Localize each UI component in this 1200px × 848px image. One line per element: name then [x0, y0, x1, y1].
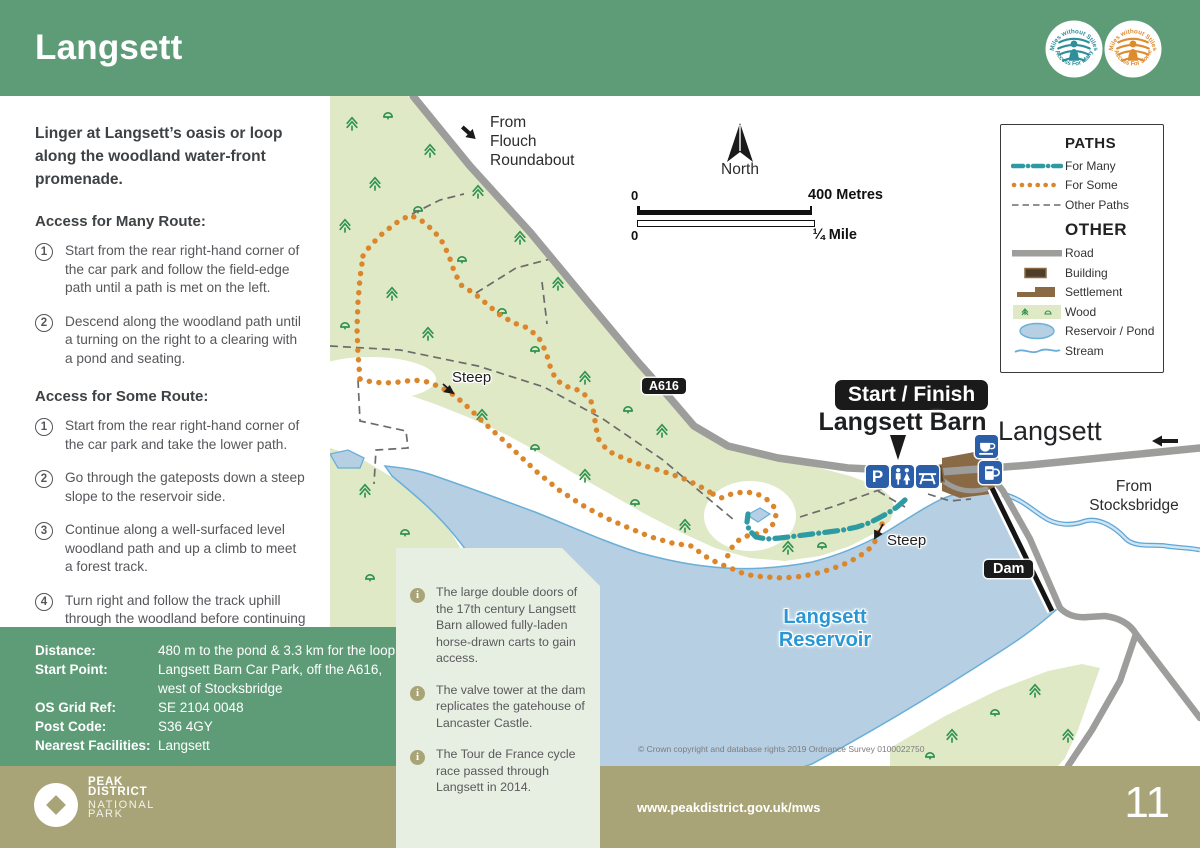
from-stocksbridge-arrow-icon	[1150, 434, 1180, 448]
info-icon: i	[410, 746, 436, 796]
many-step-1: 1 Start from the rear right-hand corner …	[35, 242, 307, 298]
map-legend: PATHS For Many For Some Other Paths OTHE…	[1000, 124, 1164, 373]
info-item-valve-tower: i The valve tower at the dam replicates …	[410, 682, 588, 732]
peak-district-logo-text: PEAK DISTRICT NATIONAL PARK	[88, 778, 155, 819]
detail-grid-ref: OS Grid Ref: SE 2104 0048	[35, 698, 400, 717]
from-stocksbridge-label: From Stocksbridge	[1078, 477, 1190, 515]
start-finish-badge: Start / Finish	[835, 380, 988, 410]
detail-post-code: Post Code: S36 4GY	[35, 717, 400, 736]
legend-item-settlement: Settlement	[1009, 283, 1163, 303]
route-details-panel: Distance: 480 m to the pond & 3.3 km for…	[0, 627, 400, 766]
route-instructions-sidebar: Linger at Langsett’s oasis or loop along…	[0, 96, 330, 627]
info-item-barn: i The large double doors of the 17th cen…	[410, 584, 588, 667]
peak-district-logo-icon	[33, 773, 81, 841]
picnic-icon	[916, 465, 939, 488]
info-icon: i	[410, 584, 436, 667]
toilets-icon	[891, 465, 914, 488]
legend-item-for-some: For Some	[1009, 176, 1163, 196]
langsett-label: Langsett	[998, 416, 1102, 447]
legend-item-for-many: For Many	[1009, 156, 1163, 176]
from-flouch-label: From Flouch Roundabout	[490, 113, 574, 170]
legend-for-many-swatch	[1009, 162, 1065, 170]
steep-east-label: Steep	[887, 532, 926, 549]
north-indicator: North	[710, 121, 770, 179]
legend-for-some-swatch	[1009, 181, 1065, 189]
copyright-text: © Crown copyright and database rights 20…	[638, 744, 924, 754]
detail-nearest-facilities: Nearest Facilities: Langsett	[35, 736, 400, 755]
legend-other-title: OTHER	[1065, 220, 1163, 240]
info-item-tour-de-france: i The Tour de France cycle race passed t…	[410, 746, 588, 796]
legend-item-other-paths: Other Paths	[1009, 195, 1163, 215]
access-for-some-heading: Access for Some Route:	[35, 388, 300, 405]
some-step-1: 1 Start from the rear right-hand corner …	[35, 417, 307, 454]
legend-building-swatch	[1009, 267, 1065, 279]
many-step-2: 2 Descend along the woodland path until …	[35, 313, 307, 369]
leaflet-page: From Flouch Roundabout North 0 400 Metre…	[0, 0, 1200, 848]
scale-miles-label: ¼ Mile	[795, 227, 857, 243]
scale-miles-zero: 0	[631, 228, 638, 243]
scale-metres-label: 400 Metres	[783, 187, 883, 203]
detail-start-point: Start Point: Langsett Barn Car Park, off…	[35, 660, 400, 698]
page-footer: PEAK DISTRICT NATIONAL PARK www.peakdist…	[0, 766, 1200, 848]
reservoir-label: Langsett Reservoir	[768, 606, 882, 652]
legend-road-swatch	[1009, 249, 1065, 257]
info-callout-box: i The large double doors of the 17th cen…	[396, 548, 600, 848]
step-number: 3	[35, 521, 65, 577]
some-step-3: 3 Continue along a well-surfaced level w…	[35, 521, 307, 577]
legend-stream-swatch	[1009, 345, 1065, 357]
legend-settlement-swatch	[1009, 285, 1065, 300]
step-number: 2	[35, 313, 65, 369]
steep-west-label: Steep	[452, 369, 491, 386]
page-header: Langsett Miles without Stiles Access For…	[0, 0, 1200, 96]
access-for-some-badge: Miles without Stiles Access For Some	[1104, 20, 1162, 78]
scale-metres-zero: 0	[631, 188, 638, 203]
legend-paths-title: PATHS	[1065, 135, 1163, 152]
website-url[interactable]: www.peakdistrict.gov.uk/mws	[637, 800, 821, 815]
step-number: 2	[35, 469, 65, 506]
legend-item-stream: Stream	[1009, 341, 1163, 361]
access-for-many-heading: Access for Many Route:	[35, 213, 300, 230]
scale-bar-metres	[637, 210, 812, 215]
parking-icon: P	[866, 465, 889, 488]
pub-icon	[979, 461, 1002, 484]
page-number: 11	[1124, 778, 1170, 828]
access-for-many-badge: Miles without Stiles Access For Many	[1045, 20, 1103, 78]
scale-bar-miles	[637, 220, 815, 227]
a616-road-badge: A616	[642, 378, 686, 394]
cafe-icon	[975, 435, 998, 458]
langsett-barn-label: Langsett Barn	[810, 408, 995, 437]
legend-item-reservoir: Reservoir / Pond	[1009, 322, 1163, 342]
page-title: Langsett	[35, 28, 182, 68]
legend-wood-swatch	[1009, 304, 1065, 320]
some-step-2: 2 Go through the gateposts down a steep …	[35, 469, 307, 506]
detail-distance: Distance: 480 m to the pond & 3.3 km for…	[35, 641, 400, 660]
legend-item-wood: Wood	[1009, 302, 1163, 322]
dam-badge: Dam	[984, 560, 1033, 578]
north-arrow-icon	[725, 121, 755, 163]
legend-other-paths-swatch	[1009, 202, 1065, 208]
legend-item-road: Road	[1009, 244, 1163, 264]
intro-text: Linger at Langsett’s oasis or loop along…	[35, 122, 303, 191]
north-label: North	[710, 161, 770, 179]
from-flouch-arrow-icon	[456, 120, 482, 146]
info-icon: i	[410, 682, 436, 732]
legend-reservoir-swatch	[1009, 322, 1065, 340]
step-number: 1	[35, 417, 65, 454]
step-number: 1	[35, 242, 65, 298]
legend-item-building: Building	[1009, 263, 1163, 283]
